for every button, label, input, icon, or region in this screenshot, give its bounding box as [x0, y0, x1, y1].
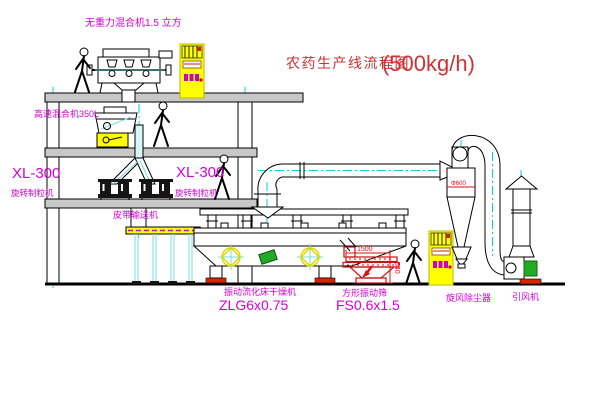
screen-model-label: FS0.6x1.5: [336, 297, 400, 313]
dryer-name-label: 振动流化床干燥机: [224, 286, 296, 297]
mixer-top-label: 无重力混合机1.5 立方: [85, 16, 182, 29]
control-cabinet-ground: [429, 231, 453, 285]
granulator-right-name: 旋转制粒机: [175, 188, 218, 198]
diagram-canvas: 无重力混合机1.5 立方 农药生产线流程图 (500kg/h) 高速混合机350…: [0, 0, 600, 403]
diagram-capacity: (500kg/h): [382, 51, 475, 76]
control-cabinet-top: [180, 44, 204, 98]
granulator-left-model: XL-300: [12, 165, 60, 182]
granulator-right-model: XL-300: [176, 164, 224, 181]
granulator-left-name: 旋转制粒机: [11, 188, 54, 198]
floor-slab-1: [45, 93, 303, 102]
fan-motor: [524, 261, 537, 276]
screen-height-dimension: 540: [393, 262, 400, 274]
fan-label: 引风机: [512, 291, 539, 302]
fan-base: [520, 279, 541, 284]
dryer-model-label: ZLG6x0.75: [219, 297, 288, 313]
process-flow-diagram: 无重力混合机1.5 立方 农药生产线流程图 (500kg/h) 高速混合机350…: [0, 0, 600, 403]
cyclone-label: 旋风除尘器: [446, 292, 491, 303]
mixer-discharge-pipe: [135, 125, 143, 159]
floor-slab-3: [45, 199, 257, 208]
cyclone-diameter-dimension: Φ600: [451, 181, 466, 187]
belt-conveyor-label: 皮带输送机: [113, 209, 158, 220]
screen-width-dimension: 1500: [357, 246, 373, 253]
mixer-floor2-label: 高速混合机350L: [34, 108, 99, 119]
